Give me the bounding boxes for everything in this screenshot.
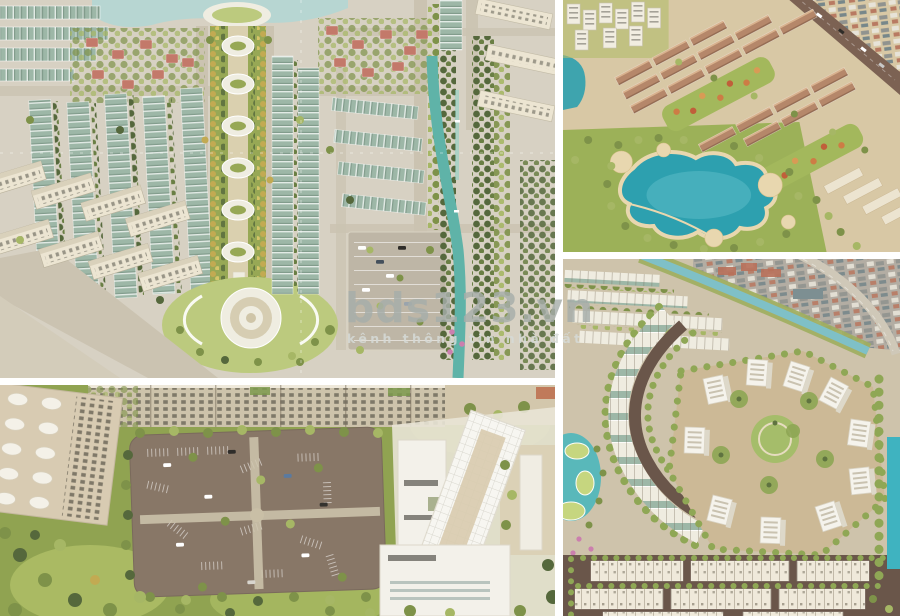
parking-lot — [129, 427, 387, 598]
crescent-render — [563, 259, 900, 616]
panel-parking-commercial — [0, 385, 555, 616]
villa-cluster-right — [318, 18, 434, 94]
central-axis — [210, 26, 266, 318]
photo-collage: bds123.vn kênh thông tin nhà đất — [0, 0, 900, 616]
skylight-strips — [390, 581, 490, 600]
commercial-building — [380, 407, 555, 616]
central-plaza — [669, 351, 885, 555]
panel-crescent-quarter — [563, 259, 900, 616]
panel-master-plan — [0, 0, 555, 378]
townhouse-block-left — [0, 385, 123, 525]
lagoon-render — [563, 0, 900, 252]
panel-lagoon-district — [563, 0, 900, 252]
townhouse-rows-right — [272, 56, 319, 294]
highrise-cluster — [563, 0, 669, 58]
parking-render — [0, 385, 555, 616]
master-plan-render — [0, 0, 555, 378]
bottom-townhouse-rows — [563, 555, 900, 616]
